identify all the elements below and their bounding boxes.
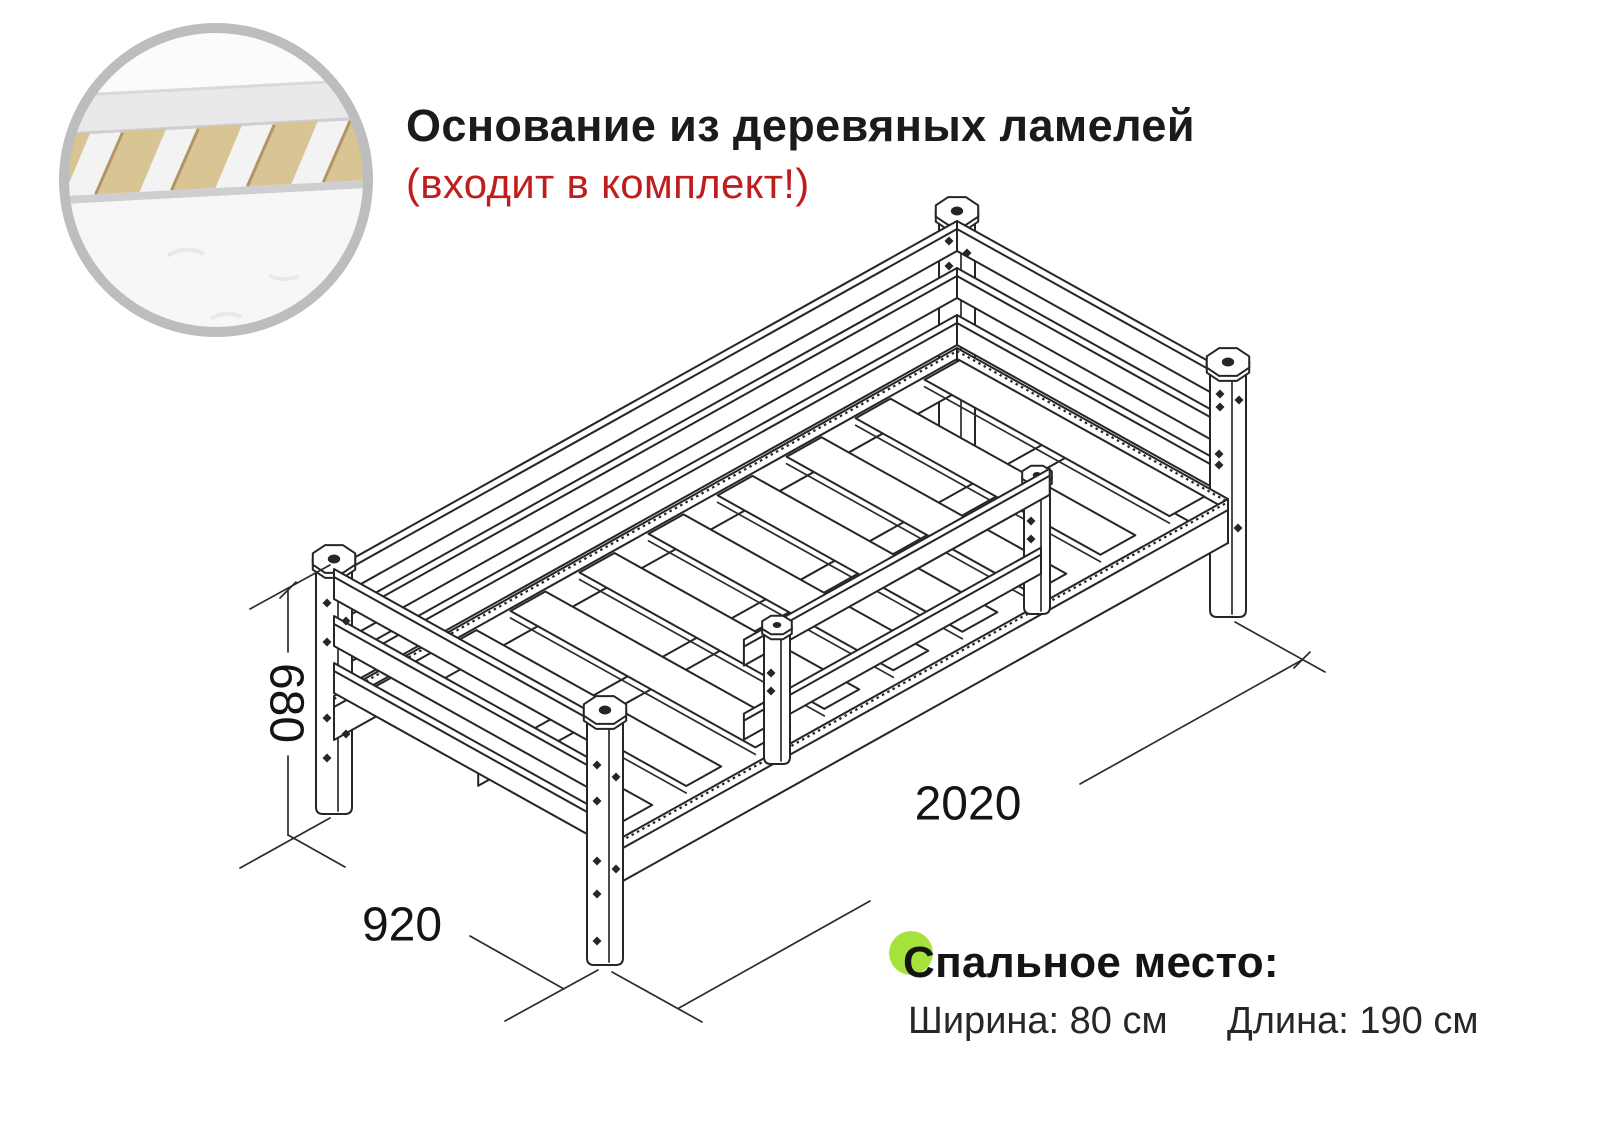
cap-hole [773, 622, 782, 628]
dim-tick [1294, 652, 1310, 668]
bed-drawing [313, 197, 1249, 965]
dim-line-width [470, 936, 564, 989]
cap-hole [328, 555, 340, 564]
ext-line [240, 818, 330, 868]
sleeping-area-length: Длина: 190 см [1227, 1000, 1478, 1043]
dimension-height-label: 680 [260, 663, 313, 743]
cap-hole [951, 207, 963, 216]
ext-line [505, 970, 598, 1021]
sleeping-area-title: Спальное место: [903, 938, 1279, 988]
bed-post-front [587, 710, 623, 965]
sleeping-area-width: Ширина: 80 см [908, 1000, 1168, 1043]
guard-post-left [764, 625, 790, 764]
product-diagram-page: Основание из деревяных ламелей (входит в… [0, 0, 1600, 1135]
dim-line-length [679, 901, 870, 1008]
dimension-width-label: 920 [362, 899, 442, 952]
dim-line-length [1080, 660, 1302, 784]
cap-hole [1222, 358, 1234, 367]
cap-hole [599, 706, 611, 715]
bed-diagram: 680 920 2020 [0, 0, 1600, 1135]
ext-line [612, 972, 702, 1022]
dim-line-width [288, 835, 345, 867]
dimension-length-label: 2020 [915, 778, 1022, 831]
ext-line [1235, 622, 1325, 672]
